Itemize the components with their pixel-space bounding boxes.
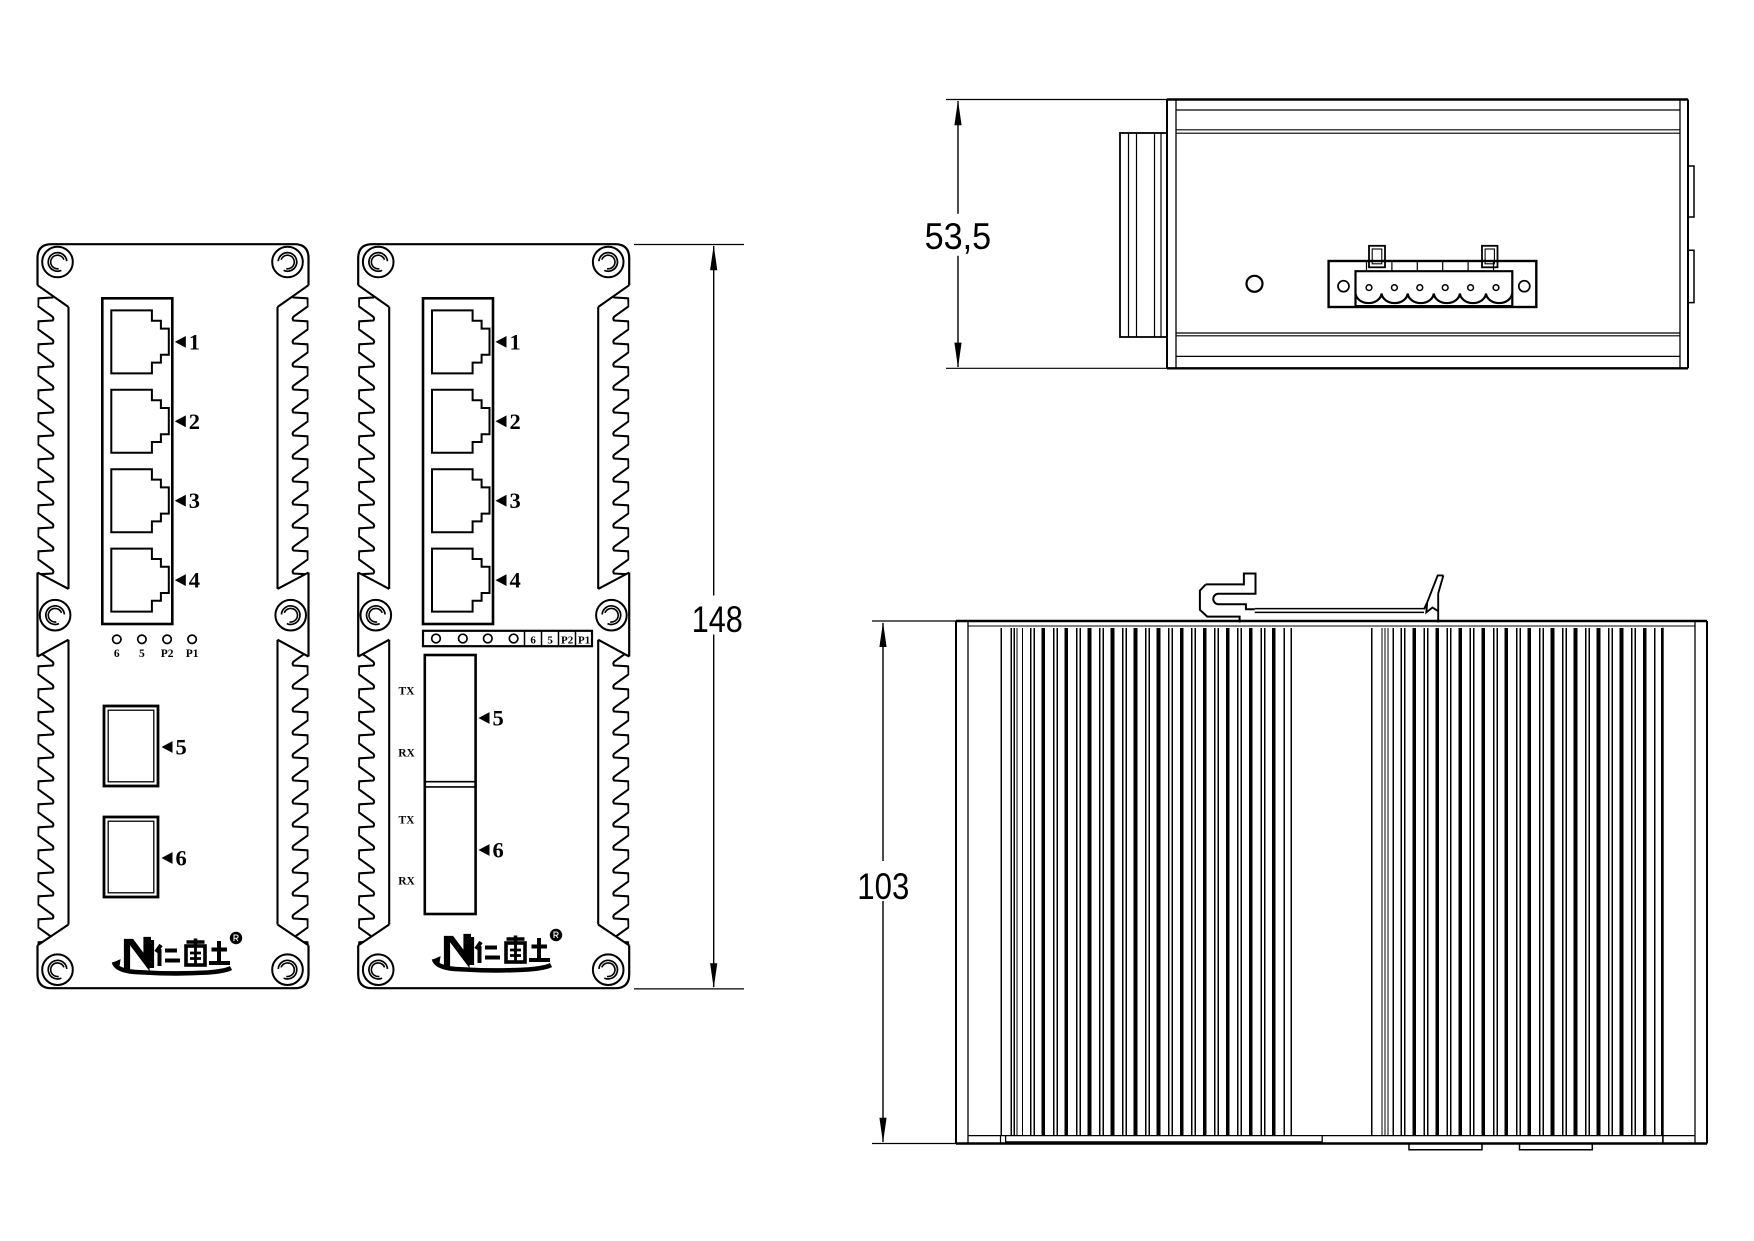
svg-text:P2: P2 [561, 635, 574, 647]
svg-text:P1: P1 [578, 635, 590, 647]
svg-text:103: 103 [857, 866, 909, 907]
svg-text:148: 148 [692, 599, 743, 640]
svg-text:4: 4 [510, 568, 521, 593]
svg-text:6: 6 [176, 846, 187, 871]
svg-text:5: 5 [139, 648, 145, 660]
svg-text:P2: P2 [161, 648, 174, 660]
svg-text:3: 3 [510, 488, 521, 513]
svg-text:RX: RX [398, 748, 415, 760]
svg-text:RX: RX [398, 876, 415, 888]
svg-text:2: 2 [189, 409, 200, 434]
svg-text:5: 5 [176, 735, 187, 760]
svg-text:6: 6 [114, 648, 120, 660]
svg-text:1: 1 [510, 329, 521, 354]
svg-text:6: 6 [493, 838, 504, 863]
svg-text:TX: TX [399, 815, 416, 827]
svg-text:6: 6 [530, 635, 536, 647]
svg-text:TX: TX [399, 686, 416, 698]
svg-text:5: 5 [547, 635, 553, 647]
svg-text:3: 3 [189, 488, 200, 513]
svg-text:2: 2 [510, 409, 521, 434]
svg-text:4: 4 [189, 568, 200, 593]
svg-text:P1: P1 [186, 648, 199, 660]
svg-text:53,5: 53,5 [925, 216, 992, 257]
svg-text:5: 5 [493, 706, 504, 731]
svg-text:1: 1 [189, 329, 200, 354]
